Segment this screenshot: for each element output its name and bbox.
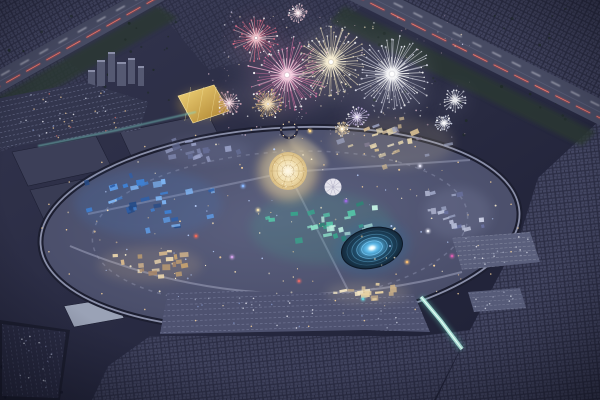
vignette-overlay (0, 0, 600, 400)
expo-2020-dubai-aerial-rendering (0, 0, 600, 400)
scene-svg (0, 0, 600, 400)
